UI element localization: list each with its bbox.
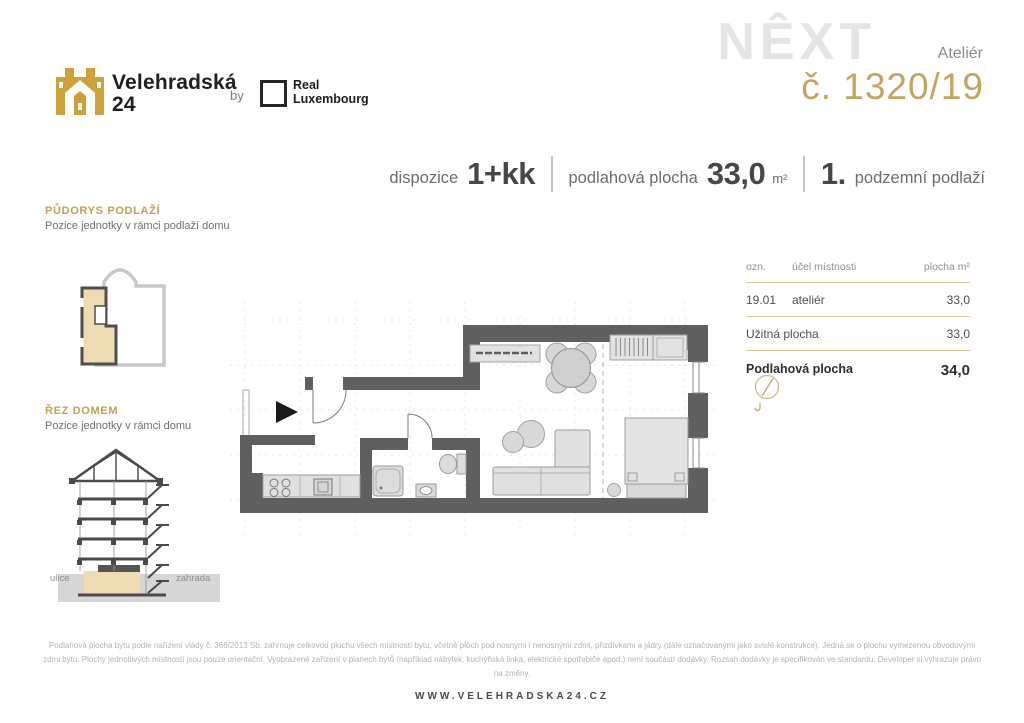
- window-right-upper: [693, 362, 705, 393]
- bathroom-door: [408, 414, 432, 438]
- col-purpose: účel místnosti: [792, 261, 924, 273]
- window-left: [243, 390, 249, 435]
- unit-summary-bar: dispozice 1+kk podlahová plocha 33,0 m² …: [389, 156, 985, 192]
- basement-unit-highlight: [84, 571, 140, 595]
- section-drawing-subtitle: Pozice jednotky v rámci domu: [45, 420, 191, 432]
- real-luxembourg-logo-icon: [260, 80, 287, 107]
- entry-door: [313, 390, 346, 423]
- roof-trusses: [94, 452, 138, 481]
- project-name-line2: 24: [112, 94, 237, 116]
- area-unit: m²: [772, 171, 787, 192]
- main-floorplan: [230, 302, 720, 537]
- kitchen-counter: [263, 475, 360, 497]
- shower: [373, 466, 403, 496]
- layout-label: dispozice: [389, 169, 458, 192]
- floorplan-sheet: NÊXT Velehradská 24 by Real Luxembourg A…: [0, 0, 1024, 723]
- unit-type-label: Ateliér: [938, 45, 983, 63]
- usable-area-row: Užitná plocha 33,0: [746, 317, 970, 351]
- total-area-row: Podlahová plocha 34,0: [746, 351, 970, 379]
- col-area: plocha m²: [924, 261, 970, 273]
- window-mark: [81, 338, 84, 347]
- shelf: [470, 345, 540, 362]
- window-right-lower: [693, 438, 705, 468]
- castle-logo-icon: [54, 63, 106, 119]
- wardrobe: [610, 335, 687, 360]
- project-name: Velehradská 24: [112, 72, 237, 116]
- floor-label: podzemní podlaží: [855, 169, 985, 192]
- table-row: 19.01 ateliér 33,0: [746, 283, 970, 317]
- summary-divider: [803, 156, 805, 192]
- floorplan-section-subtitle: Pozice jednotky v rámci podlaží domu: [45, 220, 230, 232]
- area-value: 33,0: [707, 156, 765, 192]
- summary-divider: [551, 156, 553, 192]
- partner-name: Real Luxembourg: [293, 79, 369, 106]
- garden-label: zahrada: [176, 573, 211, 584]
- column-caps: [77, 500, 148, 565]
- oven-icon: [314, 479, 332, 495]
- poufs: [503, 421, 545, 453]
- col-ozn: ozn.: [746, 261, 792, 273]
- basement-ceiling: [98, 565, 140, 572]
- stool: [608, 484, 621, 497]
- unit-number: č. 1320/19: [801, 66, 984, 108]
- section-drawing-title: ŘEZ DOMEM: [45, 405, 118, 417]
- table-header: ozn. účel místnosti plocha m²: [746, 261, 970, 283]
- next-watermark: NÊXT: [717, 12, 876, 72]
- project-name-line1: Velehradská: [112, 72, 237, 94]
- toilet: [440, 454, 467, 474]
- area-label: podlahová plocha: [569, 169, 698, 192]
- website-url: WWW.VELEHRADSKA24.CZ: [0, 691, 1024, 702]
- building-section: ulice zahrada: [48, 440, 228, 608]
- rooms-table: ozn. účel místnosti plocha m² 19.01 atel…: [746, 261, 970, 379]
- layout-value: 1+kk: [467, 156, 535, 192]
- floorplan-section-title: PŮDORYS PODLAŽÍ: [45, 205, 160, 217]
- floor-value: 1.: [821, 156, 846, 192]
- legal-disclaimer: Podlahová plocha bytu podle nařízení vlá…: [43, 639, 981, 681]
- entrance-arrow-icon: [276, 401, 298, 423]
- bed: [625, 418, 688, 498]
- street-label: ulice: [50, 573, 70, 584]
- by-label: by: [230, 88, 244, 103]
- window-mark: [81, 298, 84, 307]
- unit-room: [95, 306, 106, 324]
- sink: [416, 484, 436, 497]
- mini-floorplan: [70, 250, 195, 380]
- dining-table: [546, 343, 596, 393]
